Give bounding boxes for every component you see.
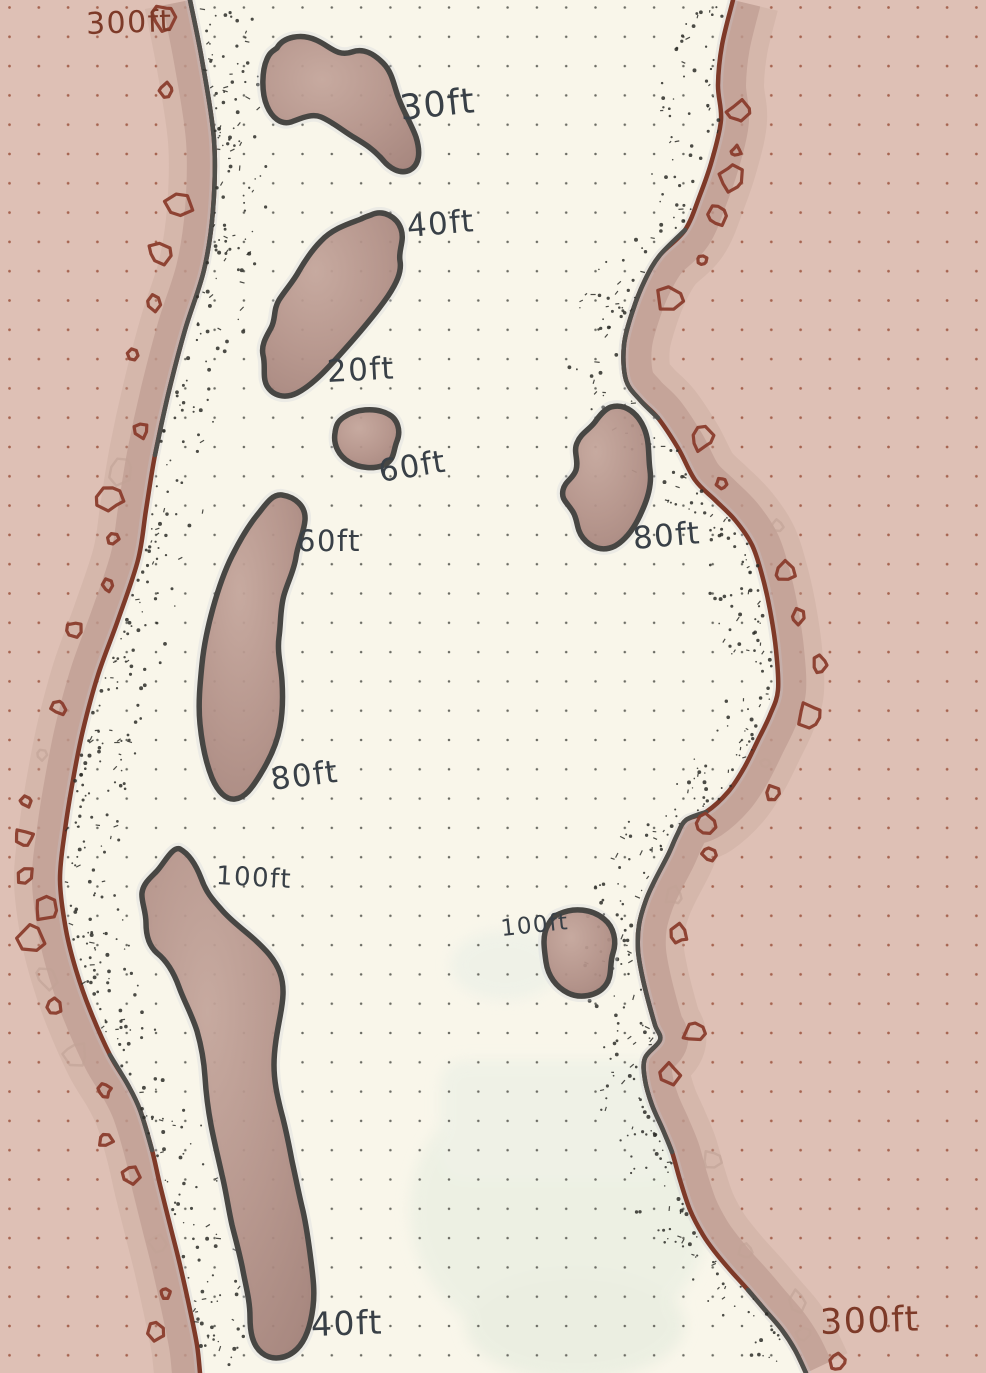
shore-depth-label-bottom-right: 300ft: [819, 1303, 920, 1341]
depth-label-island-e: 80ft: [632, 518, 702, 555]
depth-label-island-a: 30ft: [398, 84, 477, 127]
depth-label-island-f-top: 100ft: [215, 863, 292, 893]
map-drawing: [0, 0, 986, 1373]
depth-label-island-f-bottom: 40ft: [310, 1305, 383, 1340]
depth-label-island-d-top: 60ft: [297, 527, 361, 556]
depth-label-island-b-top: 40ft: [406, 206, 476, 243]
depth-label-island-b-bottom: 20ft: [326, 353, 396, 388]
hand-drawn-depth-map: 300ft 30ft 40ft 20ft 60ft 60ft 80ft 80ft…: [0, 0, 986, 1373]
depth-label-island-d-bottom: 80ft: [269, 757, 340, 796]
shore-depth-label-top-left: 300ft: [85, 7, 173, 40]
